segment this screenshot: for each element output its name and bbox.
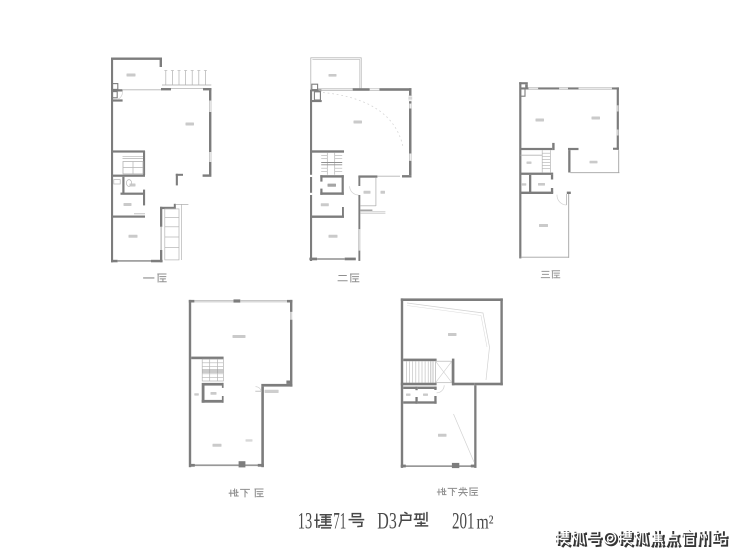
svg-text:201: 201 [452, 509, 475, 535]
svg-text:D3: D3 [377, 509, 397, 535]
svg-text:13: 13 [298, 509, 313, 535]
svg-text:m²: m² [477, 512, 494, 534]
svg-text:71: 71 [333, 509, 346, 535]
